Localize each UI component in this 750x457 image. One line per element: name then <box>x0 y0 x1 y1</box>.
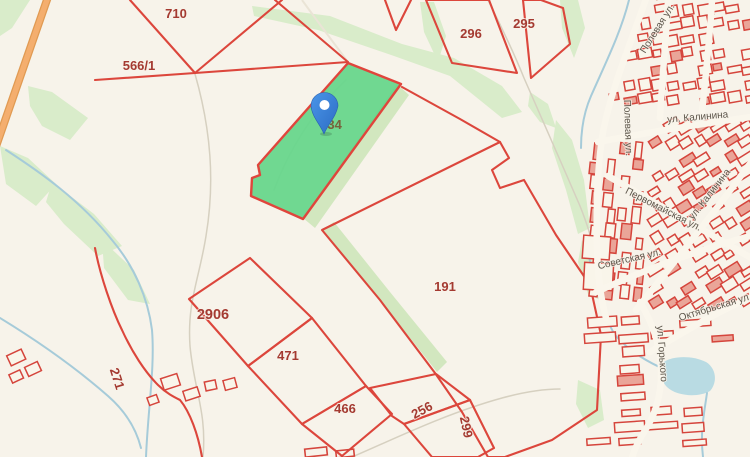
building <box>682 4 693 16</box>
building <box>622 346 644 357</box>
street-label-polevaya-vertical: Полевая ул. <box>621 100 634 157</box>
building <box>622 409 641 417</box>
building <box>638 92 653 104</box>
building <box>683 439 707 447</box>
building <box>653 49 662 57</box>
building <box>727 65 742 74</box>
building <box>728 90 742 103</box>
building <box>741 48 750 60</box>
building <box>746 95 750 103</box>
building <box>617 374 644 386</box>
building <box>587 316 617 328</box>
pin-shadow <box>320 132 332 136</box>
building <box>745 80 750 90</box>
parcel-label-295: 295 <box>513 16 535 31</box>
building <box>684 407 702 416</box>
building <box>728 20 740 30</box>
parcel-label-471: 471 <box>277 348 299 363</box>
building <box>670 50 682 62</box>
building <box>680 35 694 45</box>
building <box>631 206 641 223</box>
building <box>710 92 726 104</box>
map-svg: Полевая ул. Полевая ул. ул. Калинина ул.… <box>0 0 750 457</box>
building <box>680 16 694 28</box>
building <box>621 392 645 401</box>
building <box>713 49 725 59</box>
building <box>710 80 725 91</box>
building <box>602 192 613 207</box>
building <box>605 223 616 238</box>
building <box>633 159 644 170</box>
building <box>620 364 640 374</box>
parcel-label-710: 710 <box>165 6 187 21</box>
pin-hole-icon <box>320 100 330 110</box>
building <box>742 66 750 75</box>
building <box>635 238 642 250</box>
parcel-label-191: 191 <box>434 279 456 294</box>
building <box>620 284 630 299</box>
building <box>682 422 704 432</box>
building <box>634 142 642 159</box>
building <box>584 332 616 343</box>
building <box>743 19 750 30</box>
building <box>682 47 693 57</box>
parcel-label-2906: 2906 <box>197 307 229 323</box>
building <box>712 335 733 342</box>
map-canvas[interactable]: Полевая ул. Полевая ул. ул. Калинина ул.… <box>0 0 750 457</box>
building <box>666 63 677 75</box>
building <box>683 81 696 90</box>
parcel-label-466: 466 <box>334 401 356 416</box>
building <box>713 63 722 71</box>
parcel-label-566-1: 566/1 <box>123 58 156 73</box>
building <box>587 437 611 445</box>
building <box>667 95 679 106</box>
building <box>614 421 645 433</box>
building <box>667 81 679 91</box>
building <box>620 223 632 239</box>
map-background <box>0 0 750 457</box>
building <box>619 333 649 344</box>
building <box>638 78 651 91</box>
building <box>607 209 615 224</box>
building <box>617 208 626 221</box>
building <box>725 4 739 13</box>
building <box>621 316 639 325</box>
parcel-label-296: 296 <box>460 26 482 41</box>
building <box>624 80 635 91</box>
